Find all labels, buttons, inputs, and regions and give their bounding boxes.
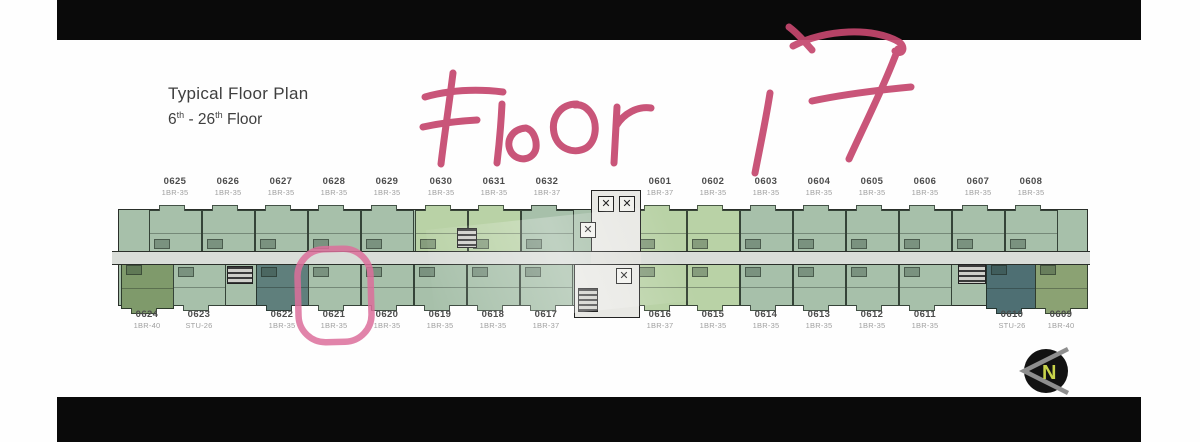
unit-cell-0617 [520,264,573,306]
stairwell [457,228,477,248]
core-corridor-crossing [591,252,641,264]
bathroom-core [260,239,276,249]
unit-label-0628: 06281BR-35 [321,176,348,197]
unit-type: 1BR-35 [753,188,780,197]
unit-type: 1BR-35 [753,321,780,330]
unit-number: 0605 [859,176,886,187]
unit-cell-0603 [740,210,793,252]
unit-type: 1BR-35 [162,188,189,197]
bathroom-core [366,239,382,249]
north-compass-graphic: N [1018,343,1074,399]
unit-number: 0618 [480,309,507,320]
unit-label-0624: 06241BR-40 [134,309,161,330]
bathroom-core [904,239,920,249]
unit-type: 1BR-35 [912,321,939,330]
bathroom-core [745,267,761,277]
unit-number: 0615 [700,309,727,320]
unit-type: 1BR-35 [374,188,401,197]
unit-type: 1BR-35 [481,188,508,197]
bathroom-core [745,239,761,249]
bathroom-core [420,239,436,249]
unit-label-0616: 06161BR-37 [647,309,674,330]
compass-north-letter: N [1042,362,1056,384]
unit-cell-0602 [687,210,740,252]
stairwell [578,288,598,312]
bathroom-core [692,239,708,249]
elevator-icon: ✕ [619,196,635,212]
unit-type: 1BR-35 [965,188,992,197]
bathroom-core [419,267,435,277]
unit-type: 1BR-40 [1048,321,1075,330]
unit-label-0612: 06121BR-35 [859,309,886,330]
bathroom-core [261,267,277,277]
unit-cell-0609 [1035,262,1088,309]
unit-type: 1BR-35 [374,321,401,330]
unit-number: 0625 [162,176,189,187]
unit-number: 0619 [427,309,454,320]
bathroom-core [957,239,973,249]
unit-cell-0615 [687,264,740,306]
unit-label-0632: 06321BR-37 [534,176,561,197]
unit-type: 1BR-35 [321,188,348,197]
unit-type: 1BR-35 [428,188,455,197]
unit-label-0625: 06251BR-35 [162,176,189,197]
unit-label-0631: 06311BR-35 [481,176,508,197]
unit-label-0618: 06181BR-35 [480,309,507,330]
unit-label-0610: 0610STU-26 [998,309,1025,330]
unit-cell-0621 [308,264,361,306]
unit-cell-0619 [414,264,467,306]
unit-type: STU-26 [998,321,1025,330]
bathroom-core [207,239,223,249]
unit-number: 0604 [806,176,833,187]
bathroom-core [126,265,142,275]
unit-cell-0628 [308,210,361,252]
unit-cell-0629 [361,210,414,252]
unit-cell-0623 [173,264,226,306]
unit-label-0607: 06071BR-35 [965,176,992,197]
unit-type: STU-26 [185,321,212,330]
unit-number: 0611 [912,309,939,320]
unit-label-0621: 06211BR-35 [321,309,348,330]
unit-number: 0616 [647,309,674,320]
bathroom-core [313,239,329,249]
unit-label-0620: 06201BR-35 [374,309,401,330]
unit-cell-0632 [521,210,574,252]
bathroom-core [692,267,708,277]
unit-number: 0629 [374,176,401,187]
unit-type: 1BR-35 [269,321,296,330]
unit-type: 1BR-37 [647,188,674,197]
unit-cell-0627 [255,210,308,252]
unit-cell-0607 [952,210,1005,252]
unit-type: 1BR-35 [700,188,727,197]
unit-type: 1BR-37 [534,188,561,197]
unit-cell-0606 [899,210,952,252]
unit-number: 0612 [859,309,886,320]
unit-number: 0607 [965,176,992,187]
unit-cell-0618 [467,264,520,306]
unit-label-0611: 06111BR-35 [912,309,939,330]
unit-type: 1BR-35 [1018,188,1045,197]
unit-label-0623: 0623STU-26 [185,309,212,330]
unit-number: 0626 [215,176,242,187]
unit-number: 0601 [647,176,674,187]
stairwell [958,264,986,284]
unit-number: 0622 [269,309,296,320]
bathroom-core [1010,239,1026,249]
unit-cell-0608 [1005,210,1058,252]
unit-number: 0627 [268,176,295,187]
unit-number: 0608 [1018,176,1045,187]
unit-number: 0613 [806,309,833,320]
unit-type: 1BR-35 [806,188,833,197]
unit-label-0602: 06021BR-35 [700,176,727,197]
unit-type: 1BR-40 [134,321,161,330]
unit-cell-0626 [202,210,255,252]
bathroom-core [798,239,814,249]
bathroom-core [639,267,655,277]
unit-cell-0604 [793,210,846,252]
unit-label-0630: 06301BR-35 [428,176,455,197]
floor-plan-photo: Typical Floor Plan 6th - 26th Floor ✕ ✕ … [0,0,1200,442]
unit-number: 0632 [534,176,561,187]
unit-cell-0613 [793,264,846,306]
bathroom-core [851,267,867,277]
unit-number: 0628 [321,176,348,187]
bathroom-core [526,239,542,249]
bathroom-core [798,267,814,277]
unit-number: 0620 [374,309,401,320]
unit-number: 0610 [998,309,1025,320]
unit-label-0627: 06271BR-35 [268,176,295,197]
unit-type: 1BR-35 [321,321,348,330]
unit-label-0614: 06141BR-35 [753,309,780,330]
unit-cell-0605 [846,210,899,252]
unit-label-0603: 06031BR-35 [753,176,780,197]
unit-type: 1BR-37 [647,321,674,330]
unit-type: 1BR-35 [480,321,507,330]
unit-cell-0616 [634,264,687,306]
unit-type: 1BR-35 [859,188,886,197]
unit-number: 0614 [753,309,780,320]
unit-label-0615: 06151BR-35 [700,309,727,330]
north-compass: N [1018,343,1074,399]
unit-type: 1BR-35 [912,188,939,197]
elevator-icon: ✕ [616,268,632,284]
unit-type: 1BR-35 [806,321,833,330]
elevator-icon: ✕ [580,222,596,238]
bathroom-core [639,239,655,249]
elevator-icon: ✕ [598,196,614,212]
unit-number: 0603 [753,176,780,187]
bathroom-core [313,267,329,277]
bathroom-core [851,239,867,249]
unit-label-0617: 06171BR-37 [533,309,560,330]
unit-label-0626: 06261BR-35 [215,176,242,197]
bathroom-core [472,267,488,277]
unit-cell-0612 [846,264,899,306]
bathroom-core [991,265,1007,275]
unit-type: 1BR-35 [700,321,727,330]
bathroom-core [178,267,194,277]
unit-number: 0621 [321,309,348,320]
bathroom-core [366,267,382,277]
unit-cell-0611 [899,264,952,306]
unit-label-0604: 06041BR-35 [806,176,833,197]
bathroom-core [154,239,170,249]
unit-cell-0601 [634,210,687,252]
unit-cell-0625 [149,210,202,252]
unit-cell-0610 [986,262,1039,309]
bathroom-core [1040,265,1056,275]
unit-number: 0624 [134,309,161,320]
unit-type: 1BR-35 [427,321,454,330]
unit-cell-0624 [121,262,174,309]
unit-number: 0623 [185,309,212,320]
unit-label-0606: 06061BR-35 [912,176,939,197]
unit-label-0608: 06081BR-35 [1018,176,1045,197]
unit-number: 0617 [533,309,560,320]
unit-label-0619: 06191BR-35 [427,309,454,330]
unit-number: 0606 [912,176,939,187]
unit-label-0601: 06011BR-37 [647,176,674,197]
unit-label-0622: 06221BR-35 [269,309,296,330]
unit-cell-0614 [740,264,793,306]
unit-type: 1BR-35 [215,188,242,197]
unit-number: 0631 [481,176,508,187]
unit-label-0609: 06091BR-40 [1048,309,1075,330]
unit-number: 0609 [1048,309,1075,320]
unit-type: 1BR-37 [533,321,560,330]
unit-cell-0620 [361,264,414,306]
unit-cell-0622 [256,264,309,306]
unit-type: 1BR-35 [268,188,295,197]
stairwell [227,266,253,284]
unit-label-0629: 06291BR-35 [374,176,401,197]
bathroom-core [904,267,920,277]
unit-label-0613: 06131BR-35 [806,309,833,330]
bathroom-core [525,267,541,277]
unit-number: 0630 [428,176,455,187]
unit-number: 0602 [700,176,727,187]
unit-label-0605: 06051BR-35 [859,176,886,197]
unit-type: 1BR-35 [859,321,886,330]
